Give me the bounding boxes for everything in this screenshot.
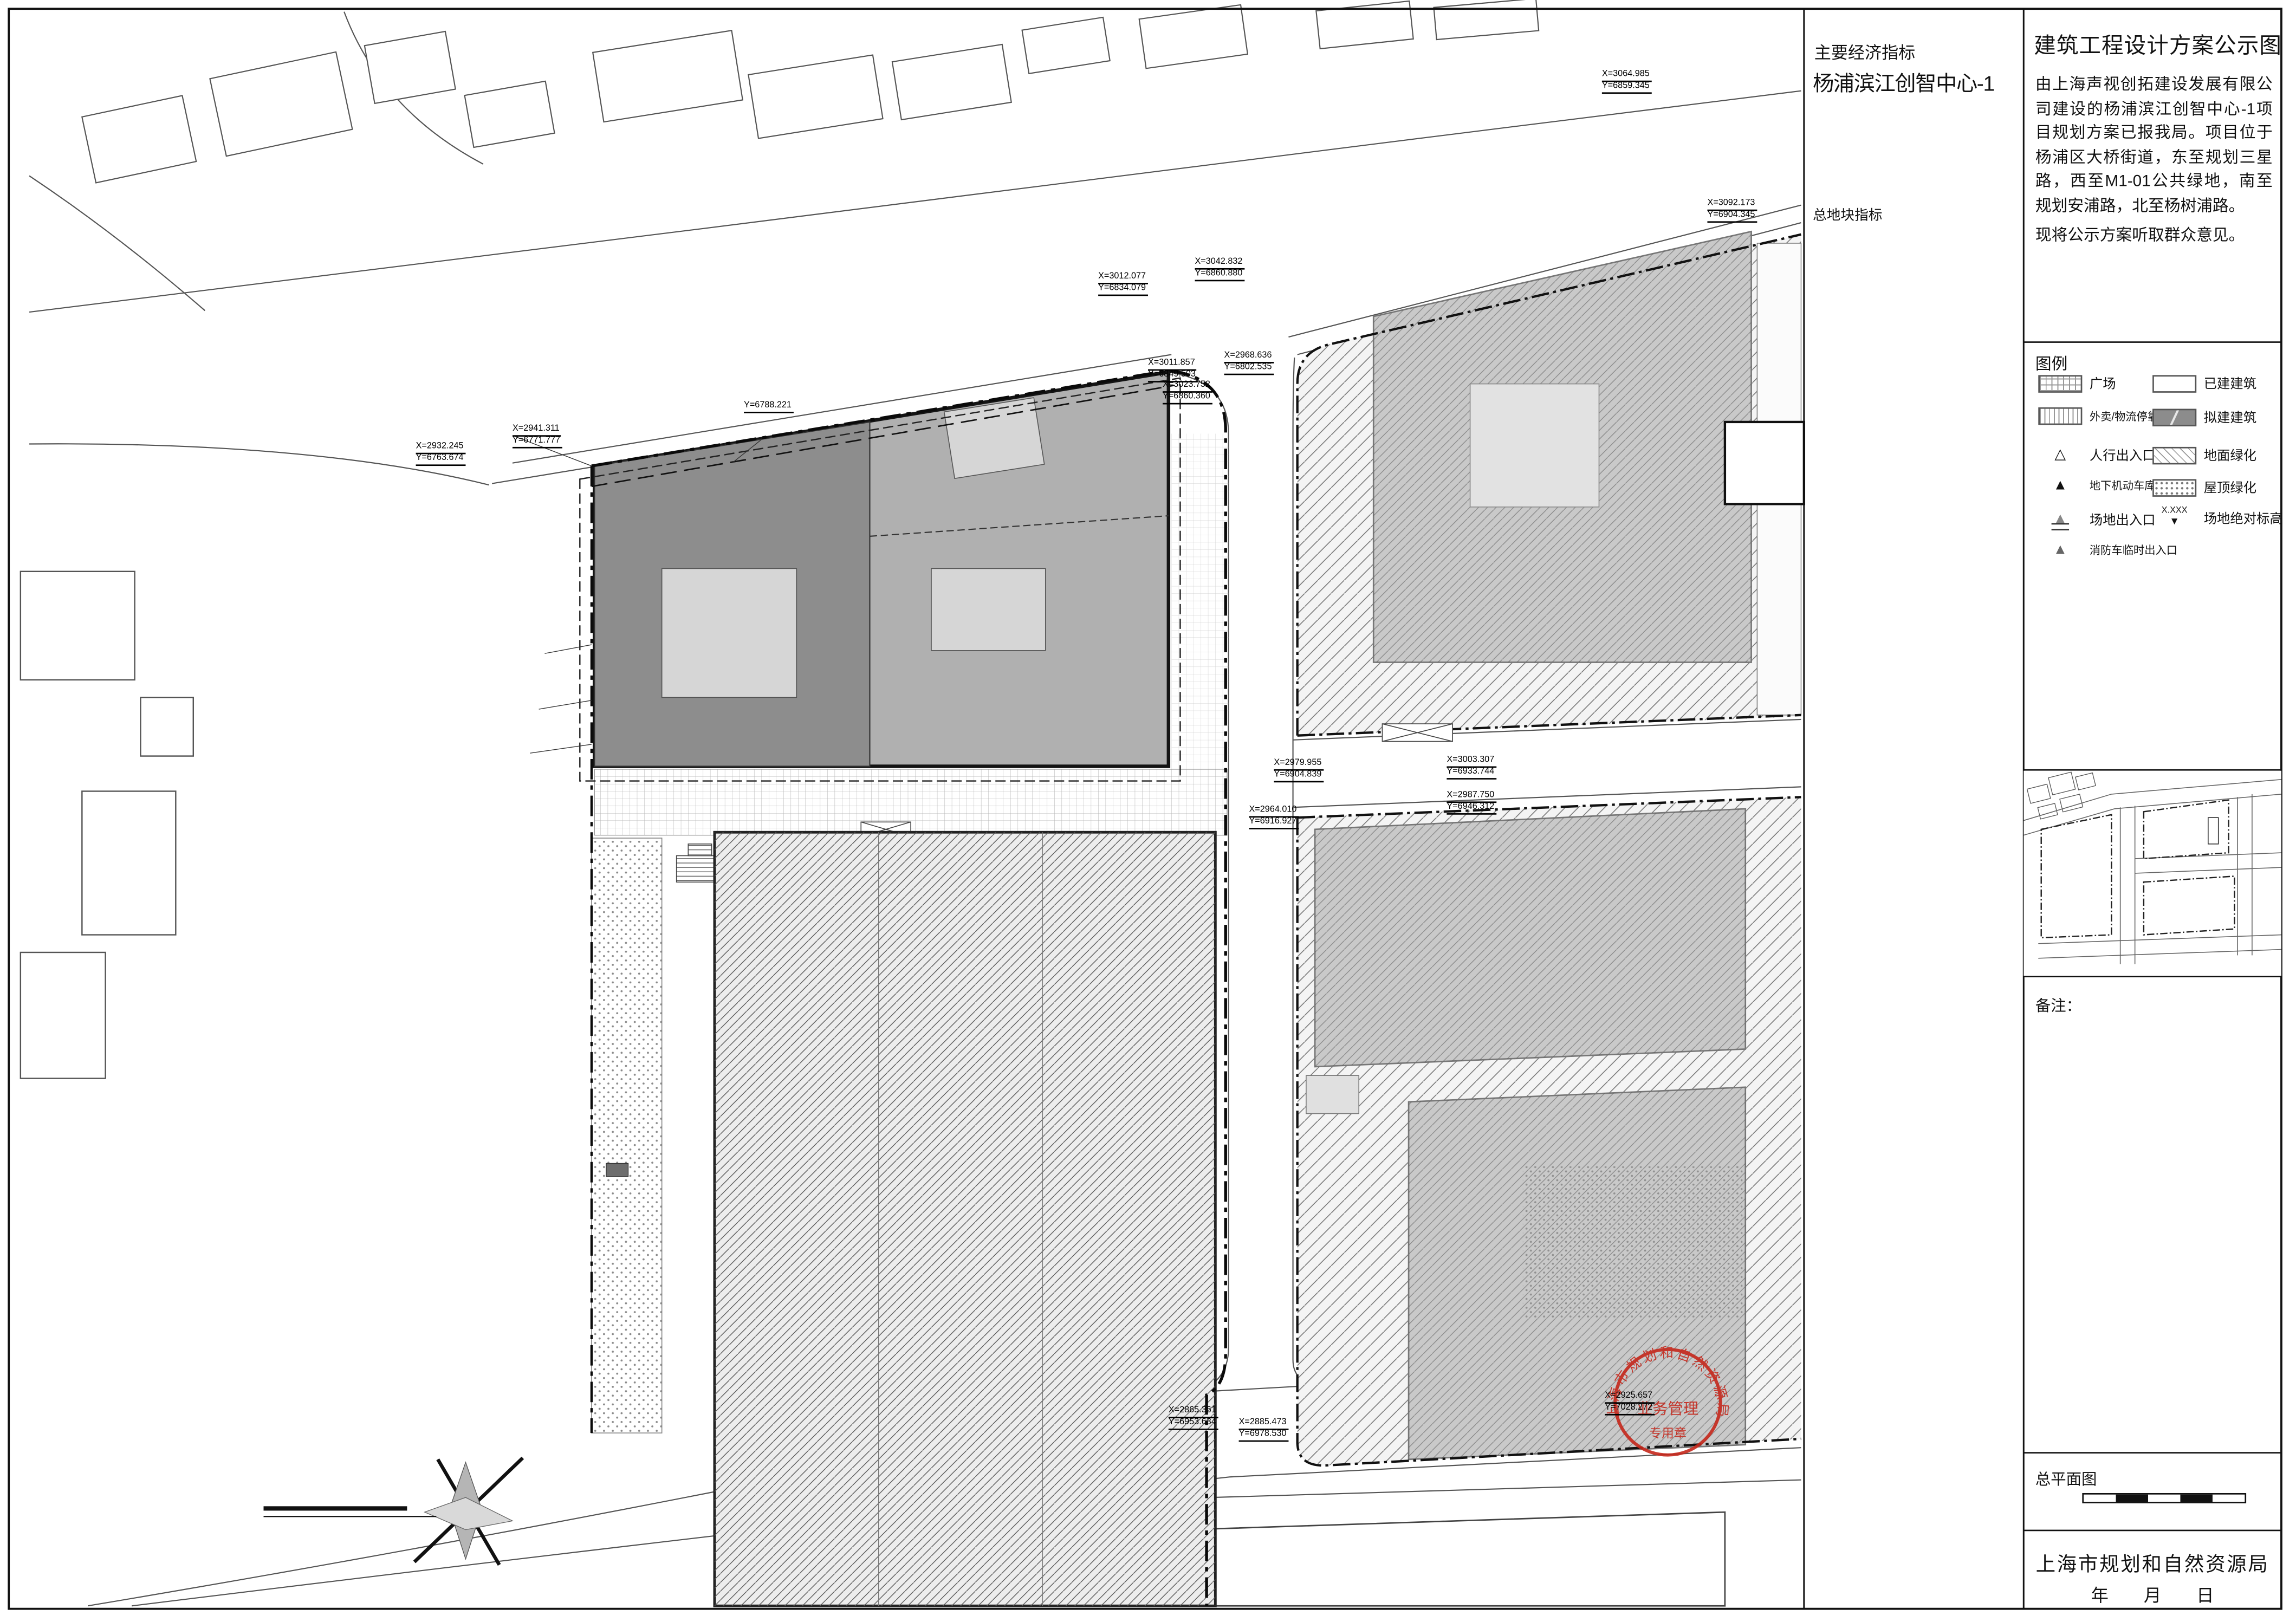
drawing-sheet: 上海市规划和自然资源局 业务管理 专用章 X=2941.311Y=6771.77… bbox=[0, 0, 2296, 1622]
legend-item: X.XXX场地绝对标高 bbox=[2152, 507, 2283, 528]
section-keymap bbox=[2023, 769, 2281, 977]
legend-symbol: ▲ bbox=[2038, 512, 2082, 527]
section-legend: 图例 广场外卖/物流停靠点△人行出入口▲地下机动车库出入口▲场地出入口▲消防车临… bbox=[2023, 341, 2281, 769]
coordinate-label: X=2925.657Y=7028.272 bbox=[1605, 1392, 1654, 1416]
legend-item: 地面绿化 bbox=[2152, 445, 2256, 464]
bureau-name: 上海市规划和自然资源局 bbox=[2023, 1547, 2281, 1576]
coordinate-label: X=2987.750Y=6946.312 bbox=[1447, 791, 1496, 815]
legend-symbol bbox=[2152, 374, 2196, 392]
scalebar-segment bbox=[2213, 1495, 2245, 1502]
legend-symbol bbox=[2152, 478, 2196, 496]
legend-symbol: ▲ bbox=[2038, 543, 2082, 557]
section-notice: 建筑工程设计方案公示图 由上海声视创拓建设发展有限公司建设的杨浦滨江创智中心-1… bbox=[2023, 9, 2281, 341]
legend-symbol bbox=[2038, 374, 2082, 392]
legend-label: 消防车临时出入口 bbox=[2090, 542, 2177, 559]
notes-title: 备注： bbox=[2035, 995, 2081, 1017]
bureau-date: 年 月 日 bbox=[2023, 1582, 2281, 1607]
legend-item: 已建建筑 bbox=[2152, 374, 2256, 393]
scale-bar-segments bbox=[2082, 1493, 2246, 1503]
legend-label: 人行出入口 bbox=[2090, 445, 2156, 464]
block-indicator-title: 总地块指标 bbox=[1813, 204, 1882, 224]
coordinate-label: X=2964.010Y=6916.927 bbox=[1249, 806, 1298, 830]
coordinate-label: X=3012.077Y=6834.079 bbox=[1098, 273, 1147, 296]
legend-label: 屋顶绿化 bbox=[2204, 478, 2256, 497]
legend-label: 地面绿化 bbox=[2204, 445, 2256, 464]
coordinate-label: X=3011.857Y=6849.503 bbox=[1148, 359, 1197, 383]
section-scale: 总平面图 bbox=[2023, 1452, 2281, 1529]
keymap-labels bbox=[2023, 771, 2281, 976]
legend-label: 场地出入口 bbox=[2090, 510, 2156, 529]
coordinate-label: Y=6788.221 bbox=[744, 401, 793, 413]
legend-label: 已建建筑 bbox=[2204, 374, 2256, 393]
section-notes: 备注： bbox=[2023, 977, 2281, 1452]
coordinate-label: X=3023.752Y=6860.360 bbox=[1163, 381, 1212, 405]
legend-item: 广场 bbox=[2038, 374, 2116, 393]
legend-label: 拟建建筑 bbox=[2204, 407, 2256, 426]
coordinate-label: X=2885.473Y=6978.530 bbox=[1239, 1418, 1288, 1442]
scalebar-segment bbox=[2148, 1495, 2180, 1502]
notice-panel: 建筑工程设计方案公示图 由上海声视创拓建设发展有限公司建设的杨浦滨江创智中心-1… bbox=[2023, 9, 2281, 1608]
legend-item: 拟建建筑 bbox=[2152, 407, 2256, 426]
scalebar-segment bbox=[2180, 1495, 2212, 1502]
legend-symbol: ▲ bbox=[2038, 478, 2082, 493]
coordinate-label: X=2968.636Y=6802.535 bbox=[1224, 352, 1274, 375]
legend-title: 图例 bbox=[2035, 352, 2067, 375]
project-name: 杨浦滨江创智中心-1 bbox=[1813, 67, 1994, 98]
coordinate-label: X=3092.173Y=6904.345 bbox=[1707, 199, 1756, 223]
legend-label: 广场 bbox=[2090, 374, 2116, 393]
coordinate-label: X=3042.832Y=6860.880 bbox=[1195, 258, 1244, 282]
economic-panel: 主要经济指标 杨浦滨江创智中心-1 总地块指标 bbox=[1806, 9, 2022, 1608]
legend-label: 场地绝对标高 bbox=[2204, 508, 2283, 527]
legend-item: ▲消防车临时出入口 bbox=[2038, 542, 2177, 559]
legend-symbol bbox=[2152, 408, 2196, 425]
scale-bar bbox=[2082, 1491, 2259, 1503]
scalebar-segment bbox=[2084, 1495, 2116, 1502]
legend-symbol: △ bbox=[2038, 447, 2082, 462]
economic-header: 主要经济指标 bbox=[1814, 41, 1915, 64]
legend-symbol bbox=[2038, 407, 2082, 425]
keymap bbox=[2023, 771, 2281, 976]
coordinate-label: X=2865.361Y=6953.634 bbox=[1169, 1406, 1218, 1430]
notice-paragraph-2: 现将公示方案听取群众意见。 bbox=[2035, 223, 2245, 246]
legend-item: ▲场地出入口 bbox=[2038, 510, 2155, 529]
sheet-scaler: 上海市规划和自然资源局 业务管理 专用章 X=2941.311Y=6771.77… bbox=[0, 0, 2296, 1622]
legend-item: 外卖/物流停靠点 bbox=[2038, 407, 2169, 425]
site-plan-coordinates: X=2941.311Y=6771.777X=2932.245Y=6763.674… bbox=[0, 0, 1804, 1622]
legend-item: △人行出入口 bbox=[2038, 445, 2155, 464]
legend-symbol bbox=[2152, 446, 2196, 464]
legend-item: 屋顶绿化 bbox=[2152, 478, 2256, 497]
scale-section-label: 总平面图 bbox=[2035, 1468, 2097, 1490]
coordinate-label: X=2932.245Y=6763.674 bbox=[416, 443, 465, 466]
legend-symbol: X.XXX bbox=[2152, 507, 2196, 528]
scalebar-segment bbox=[2116, 1495, 2148, 1502]
sheet-title: 建筑工程设计方案公示图 bbox=[2034, 29, 2282, 60]
coordinate-label: X=2979.955Y=6904.839 bbox=[1274, 759, 1323, 783]
section-bureau: 上海市规划和自然资源局 年 月 日 bbox=[2023, 1530, 2281, 1609]
coordinate-label: X=2941.311Y=6771.777 bbox=[513, 425, 562, 449]
coordinate-label: X=3003.307Y=6933.744 bbox=[1447, 756, 1496, 780]
coordinate-label: X=3064.985Y=6859.345 bbox=[1602, 70, 1651, 94]
notice-paragraph: 由上海声视创拓建设发展有限公司建设的杨浦滨江创智中心-1项目规划方案已报我局。项… bbox=[2035, 73, 2273, 218]
